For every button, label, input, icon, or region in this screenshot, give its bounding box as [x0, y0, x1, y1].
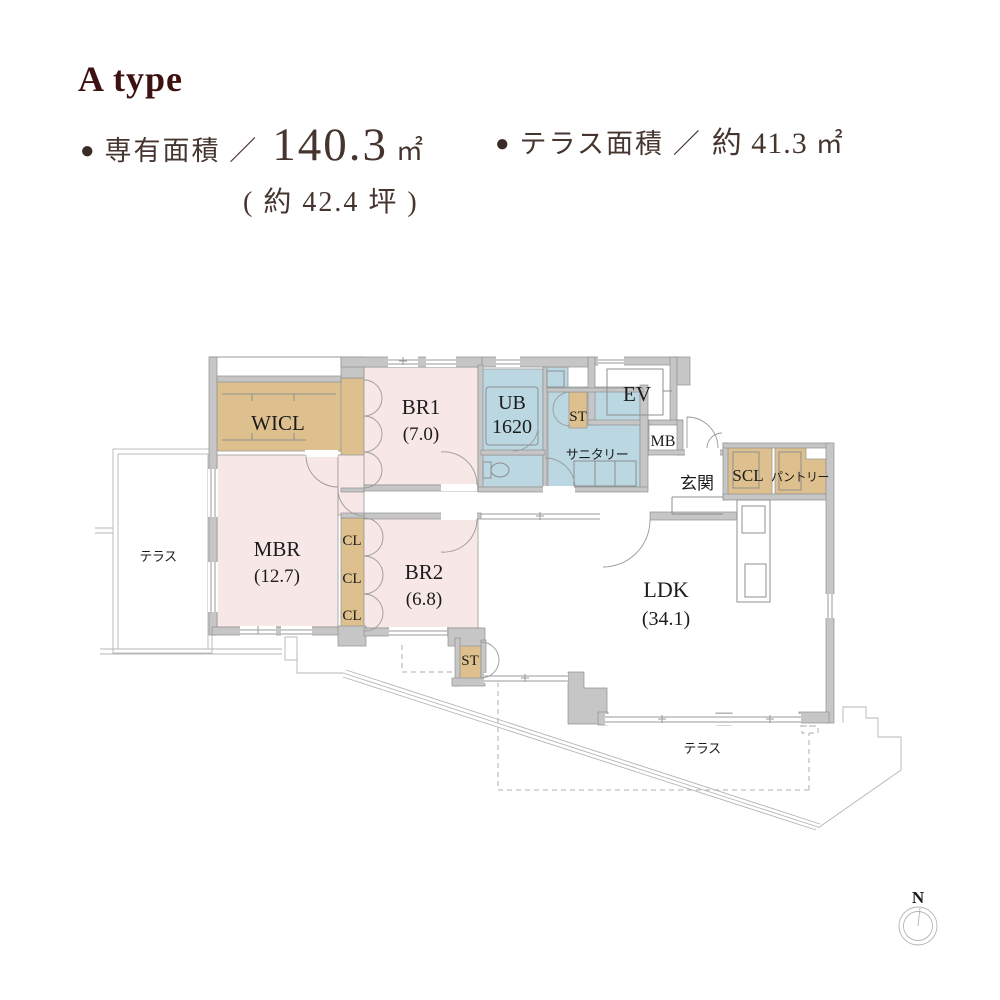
- room-label-scl: SCL: [732, 466, 763, 485]
- room-label-sanitary: サニタリー: [566, 447, 629, 462]
- compass: N: [899, 888, 937, 945]
- room-area-ldk: (34.1): [642, 608, 690, 630]
- ldk-door: [603, 520, 650, 567]
- room-label-ev: EV: [623, 382, 651, 406]
- compass-north-label: N: [912, 888, 925, 907]
- room-area-br1: (7.0): [403, 424, 439, 445]
- terrace-west-label: テラス: [139, 549, 176, 564]
- room-size-ub: 1620: [492, 416, 532, 438]
- room-label-ub: UB: [498, 392, 526, 414]
- room-label-br1: BR1: [402, 395, 441, 419]
- room-label-cl1: CL: [342, 533, 361, 549]
- room-label-wicl: WICL: [251, 411, 305, 435]
- room-label-cl3: CL: [342, 608, 361, 624]
- room-toilet: [481, 455, 543, 487]
- terrace-south-label: テラス: [683, 741, 720, 756]
- room-label-genkan: 玄関: [680, 474, 714, 493]
- genkan-step: [672, 497, 723, 514]
- room-label-pantry: パントリー: [771, 470, 829, 484]
- room-mbr-entry: [338, 455, 364, 515]
- room-label-mbr: MBR: [254, 537, 301, 561]
- entry-door: [687, 417, 722, 448]
- room-label-br2: BR2: [405, 560, 444, 584]
- room-label-st-upper: ST: [569, 409, 587, 425]
- room-label-st-lower: ST: [461, 653, 479, 669]
- room-label-mb: MB: [651, 433, 676, 450]
- floor-plan: WICL BR1 (7.0) UB 1620 ST サニタリー EV MB 玄関…: [0, 0, 1000, 1000]
- room-area-mbr: (12.7): [254, 566, 300, 587]
- room-area-br2: (6.8): [406, 589, 442, 610]
- compass-needle: [918, 908, 920, 926]
- room-label-ldk: LDK: [643, 577, 688, 602]
- room-label-cl2: CL: [342, 571, 361, 587]
